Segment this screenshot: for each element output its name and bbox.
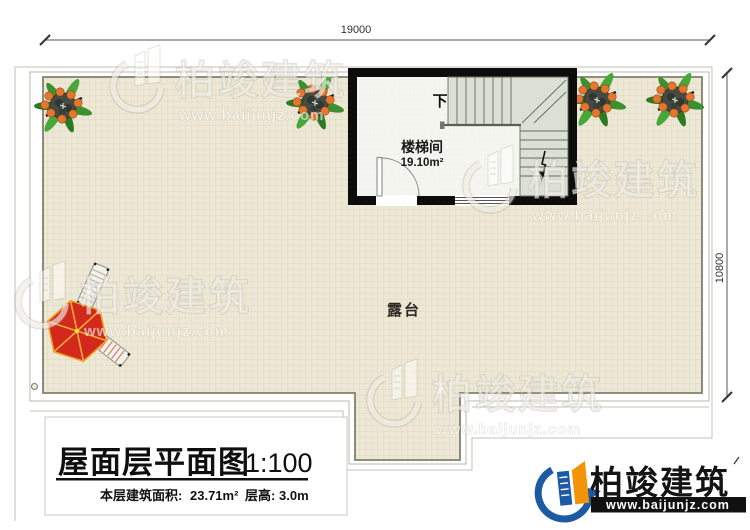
roof-drain-marker	[32, 384, 38, 390]
floor-height-label: 层高:	[245, 488, 275, 503]
floor-plan-sheet: 19000 10800 露台	[0, 0, 750, 530]
company-logo: 柏竣建筑 www.baijunjz.com	[538, 457, 746, 519]
plan-title: 屋面层平面图	[58, 445, 250, 480]
plan-scale: 1:100	[245, 448, 313, 478]
trademark-mark	[734, 457, 739, 464]
watermark-brand: 柏竣建筑	[432, 373, 604, 417]
door-opening	[376, 195, 417, 206]
stair-direction-label: 下	[432, 93, 447, 110]
stairwell-name-label: 楼梯间	[401, 139, 443, 155]
plan-subtitle: 本层建筑面积: 23.71m² 层高: 3.0m	[100, 488, 309, 503]
area-label: 本层建筑面积:	[100, 488, 182, 503]
terrace-label: 露台	[387, 301, 421, 319]
area-value: 23.71m²	[190, 488, 239, 503]
watermark-url: www.baijunjz.com	[178, 107, 324, 124]
watermark-logo-icon	[18, 261, 66, 326]
handrail-endcap	[440, 122, 445, 130]
title-underline	[56, 478, 308, 481]
dimension-right: 10800	[714, 68, 732, 402]
watermark-brand: 柏竣建筑	[80, 275, 252, 319]
logo-website-text: www.baijunjz.com	[605, 498, 730, 512]
dimension-top-label: 19000	[341, 24, 372, 36]
dimension-right-label: 10800	[714, 253, 726, 284]
watermark-url: www.baijunjz.com	[435, 421, 581, 438]
watermark-brand: 柏竣建筑	[528, 159, 700, 203]
floor-plan-drawing: 19000 10800 露台	[0, 0, 750, 530]
watermark-url: www.baijunjz.com	[531, 207, 677, 224]
stairwell-area-label: 19.10m²	[401, 157, 444, 169]
watermark-brand: 柏竣建筑	[175, 59, 347, 103]
dimension-top: 19000	[40, 24, 715, 45]
door-leaf	[377, 158, 382, 197]
floor-height-value: 3.0m	[279, 488, 309, 503]
logo-brand-text: 柏竣建筑	[590, 464, 730, 501]
watermark-url: www.baijunjz.com	[83, 323, 229, 340]
